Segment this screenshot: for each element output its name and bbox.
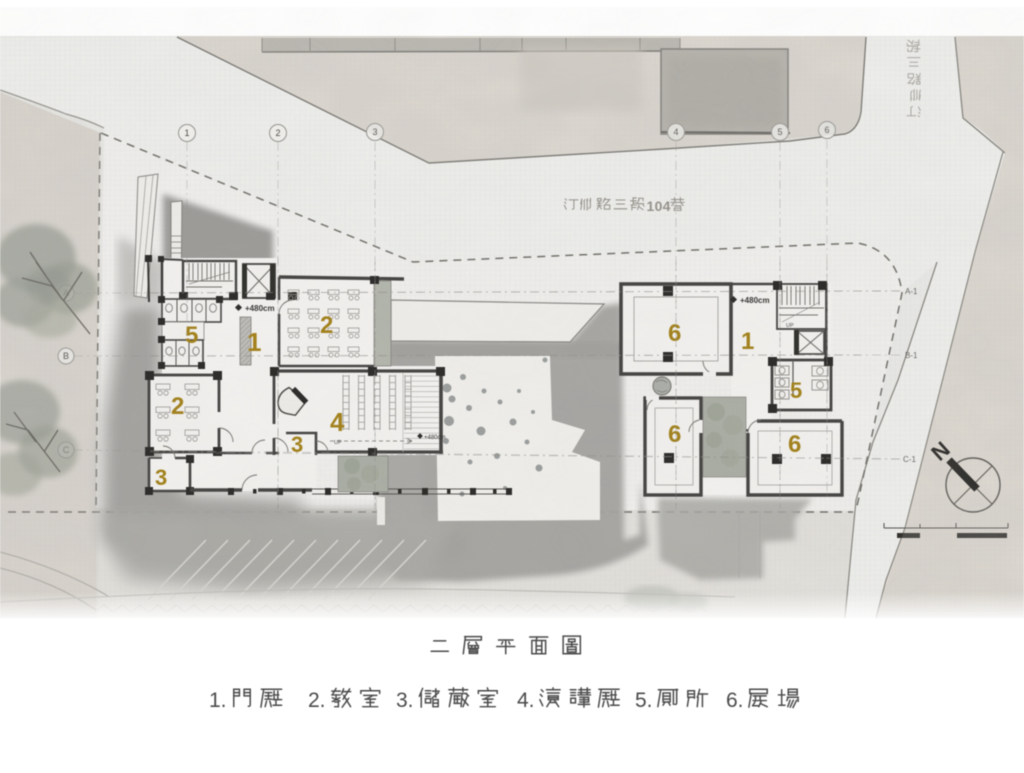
svg-text:6.: 6. [726, 689, 744, 712]
svg-text:5.: 5. [635, 689, 653, 712]
svg-text:2.: 2. [308, 689, 326, 712]
svg-text:3.: 3. [396, 689, 414, 712]
svg-text:1.: 1. [209, 689, 227, 712]
svg-text:4.: 4. [517, 689, 535, 712]
